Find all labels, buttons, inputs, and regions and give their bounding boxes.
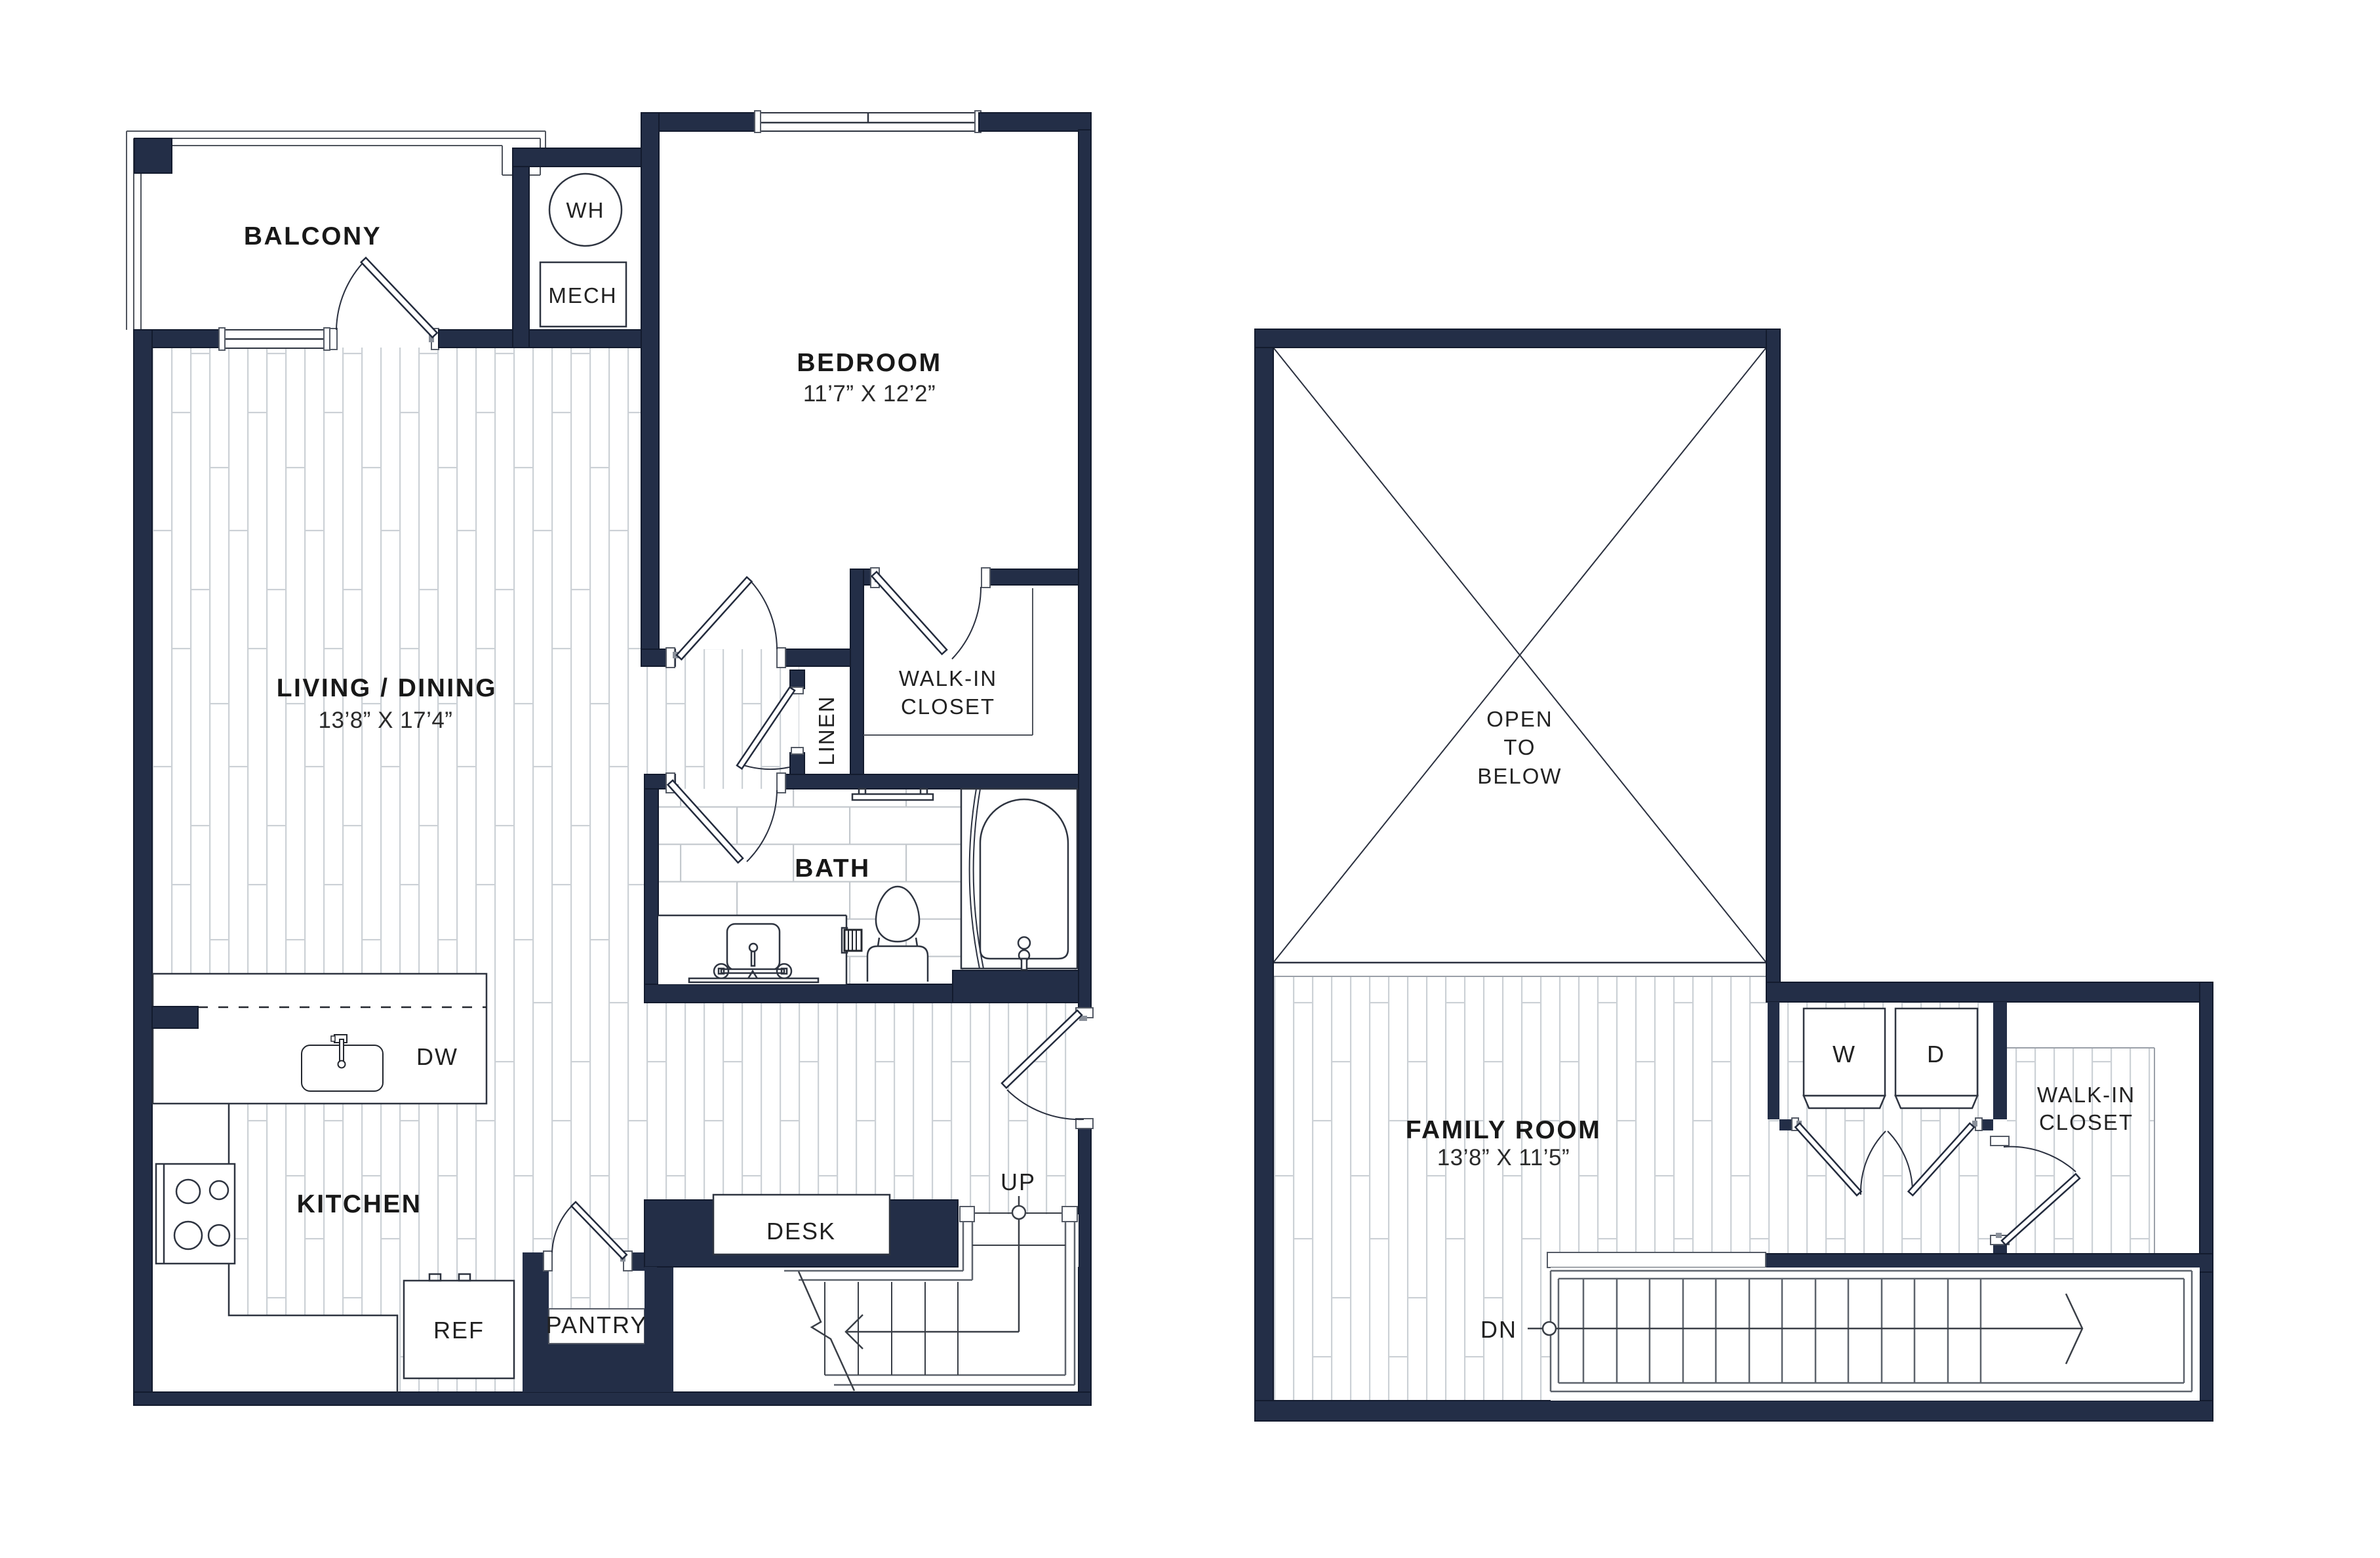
svg-text:WALK-IN: WALK-IN — [899, 666, 997, 690]
svg-text:FAMILY ROOM: FAMILY ROOM — [1406, 1116, 1601, 1144]
svg-text:BATH: BATH — [795, 854, 870, 883]
svg-text:MECH: MECH — [548, 283, 617, 308]
svg-text:WALK-IN: WALK-IN — [2037, 1083, 2135, 1107]
svg-text:CLOSET: CLOSET — [901, 694, 995, 719]
svg-text:BEDROOM: BEDROOM — [797, 349, 942, 377]
svg-text:DN: DN — [1480, 1316, 1517, 1343]
svg-text:D: D — [1927, 1041, 1945, 1068]
svg-text:DESK: DESK — [766, 1218, 836, 1245]
svg-text:13’8” X 11’5”: 13’8” X 11’5” — [1437, 1145, 1570, 1170]
svg-text:DW: DW — [416, 1043, 458, 1070]
svg-text:BELOW: BELOW — [1477, 764, 1562, 788]
svg-text:BALCONY: BALCONY — [244, 222, 382, 250]
svg-text:WH: WH — [566, 198, 605, 222]
svg-text:W: W — [1833, 1041, 1856, 1068]
svg-text:TO: TO — [1503, 735, 1536, 759]
svg-text:13’8” X 17’4”: 13’8” X 17’4” — [319, 708, 453, 733]
svg-text:OPEN: OPEN — [1486, 707, 1553, 731]
svg-text:LINEN: LINEN — [814, 695, 839, 765]
svg-text:UP: UP — [1001, 1168, 1036, 1195]
svg-text:KITCHEN: KITCHEN — [297, 1190, 422, 1218]
svg-text:LIVING / DINING: LIVING / DINING — [277, 674, 498, 702]
svg-text:PANTRY: PANTRY — [546, 1311, 648, 1338]
svg-text:CLOSET: CLOSET — [2039, 1110, 2133, 1134]
svg-text:11’7” X 12’2”: 11’7” X 12’2” — [803, 381, 936, 407]
svg-text:REF: REF — [433, 1317, 485, 1344]
